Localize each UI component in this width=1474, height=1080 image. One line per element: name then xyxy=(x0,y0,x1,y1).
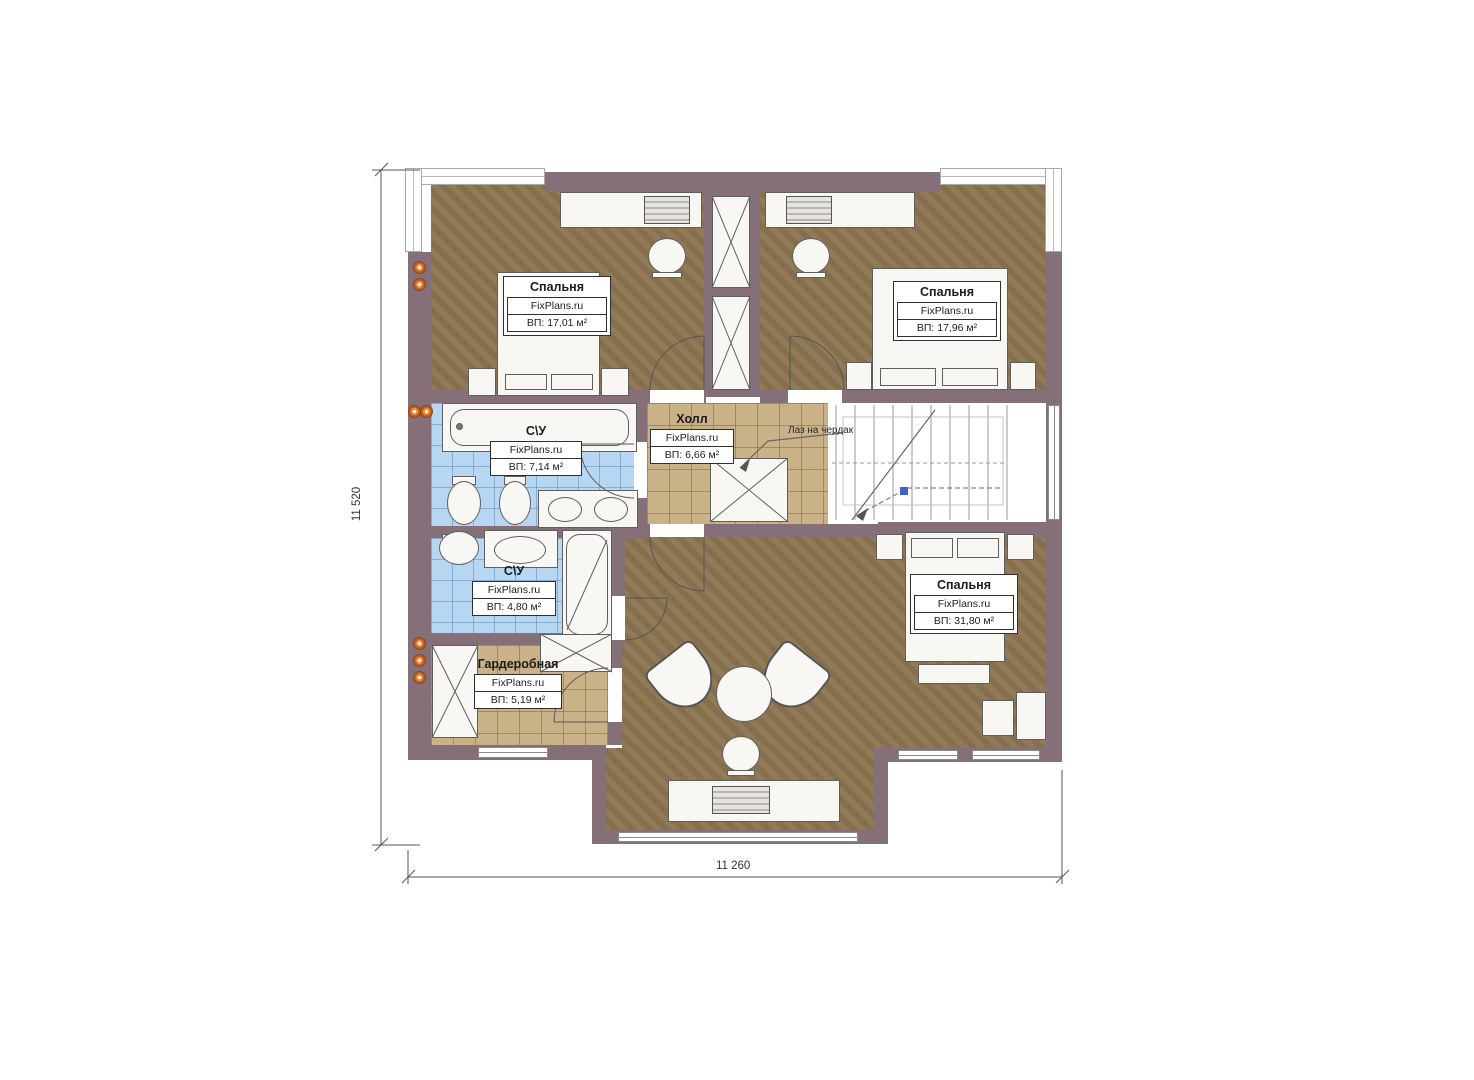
shower-tray xyxy=(566,534,608,635)
window xyxy=(1048,405,1060,520)
nightstand xyxy=(1010,362,1036,390)
door-opening xyxy=(788,390,842,403)
toilet xyxy=(447,481,481,525)
office-chair xyxy=(792,238,830,274)
nightstand xyxy=(468,368,496,396)
riser-marker-icon xyxy=(420,405,433,418)
room-label-bathroom-1: С\У FixPlans.ru ВП: 7,14 м² xyxy=(490,424,582,476)
window xyxy=(898,750,958,760)
chair-back xyxy=(796,272,826,278)
window xyxy=(972,750,1040,760)
room-area: ВП: 17,01 м² xyxy=(508,314,606,331)
riser-marker-icon xyxy=(413,261,426,274)
room-name: С\У xyxy=(472,564,556,578)
brand-label: FixPlans.ru xyxy=(915,596,1013,612)
window xyxy=(478,747,548,758)
office-chair xyxy=(648,238,686,274)
pillow xyxy=(957,538,999,558)
vent-shaft xyxy=(712,296,750,390)
pillow xyxy=(942,368,998,386)
room-area: ВП: 7,14 м² xyxy=(491,458,581,475)
dimension-vertical: 11 520 xyxy=(351,487,363,521)
wall xyxy=(545,172,940,192)
riser-marker-icon xyxy=(413,637,426,650)
room-area: ВП: 17,96 м² xyxy=(898,319,996,336)
room-label-bedroom-2: Спальня FixPlans.ru ВП: 17,96 м² xyxy=(893,281,1001,341)
room-name: С\У xyxy=(490,424,582,438)
riser-marker-icon xyxy=(413,654,426,667)
printer-icon xyxy=(786,196,832,224)
chair-back xyxy=(652,272,682,278)
room-label-wardrobe: Гардеробная FixPlans.ru ВП: 5,19 м² xyxy=(465,657,571,709)
riser-marker-icon xyxy=(413,278,426,291)
room-label-bedroom-1: Спальня FixPlans.ru ВП: 17,01 м² xyxy=(503,276,611,336)
attic-hatch-box xyxy=(710,458,788,522)
brand-label: FixPlans.ru xyxy=(491,442,581,458)
brand-label: FixPlans.ru xyxy=(475,675,561,691)
brand-label: FixPlans.ru xyxy=(473,582,555,598)
toilet xyxy=(439,531,479,565)
dimension-horizontal: 11 260 xyxy=(716,860,750,872)
door-opening xyxy=(612,596,625,640)
room-label-bathroom-2: С\У FixPlans.ru ВП: 4,80 м² xyxy=(472,564,556,616)
brand-label: FixPlans.ru xyxy=(898,303,996,319)
pillow xyxy=(505,374,547,390)
wall xyxy=(592,745,606,842)
sink xyxy=(548,497,582,522)
corner-window xyxy=(940,168,1062,185)
room-label-bedroom-3: Спальня FixPlans.ru ВП: 31,80 м² xyxy=(910,574,1018,634)
nightstand xyxy=(876,534,903,560)
pillow xyxy=(911,538,953,558)
corner-window xyxy=(405,168,545,185)
bidet xyxy=(499,481,531,525)
riser-marker-icon xyxy=(413,671,426,684)
room-area: ВП: 31,80 м² xyxy=(915,612,1013,629)
door-opening xyxy=(650,524,704,537)
faucet-icon xyxy=(456,423,463,430)
room-area: ВП: 5,19 м² xyxy=(475,691,561,708)
room-name: Спальня xyxy=(507,280,607,294)
floor-plan-canvas: Спальня FixPlans.ru ВП: 17,01 м² Спальня… xyxy=(0,0,1474,1080)
room-area: ВП: 4,80 м² xyxy=(473,598,555,615)
room-name: Холл xyxy=(650,412,734,426)
cabinet xyxy=(982,700,1014,736)
chair-back xyxy=(727,770,755,776)
pillow xyxy=(880,368,936,386)
cabinet xyxy=(1016,692,1046,740)
brand-label: FixPlans.ru xyxy=(651,430,733,446)
room-area: ВП: 6,66 м² xyxy=(651,446,733,463)
round-table xyxy=(716,666,772,722)
printer-icon xyxy=(644,196,690,224)
door-opening xyxy=(608,668,622,722)
nightstand xyxy=(601,368,629,396)
room-name: Гардеробная xyxy=(465,657,571,671)
sink xyxy=(594,497,628,522)
pillow xyxy=(551,374,593,390)
room-label-hall: Холл FixPlans.ru ВП: 6,66 м² xyxy=(650,412,734,464)
bed-bench xyxy=(918,664,990,684)
room-name: Спальня xyxy=(914,578,1014,592)
staircase-floor xyxy=(828,403,1046,522)
nightstand xyxy=(1007,534,1034,560)
nightstand xyxy=(846,362,872,390)
room-name: Спальня xyxy=(897,285,997,299)
office-chair xyxy=(722,736,760,772)
sink xyxy=(494,536,546,564)
vent-shaft xyxy=(712,196,750,288)
corner-window xyxy=(405,168,422,252)
corner-window xyxy=(1045,168,1062,252)
printer-icon xyxy=(712,786,770,814)
bay-window xyxy=(618,832,858,842)
attic-hatch-annotation: Лаз на чердак xyxy=(788,425,853,436)
brand-label: FixPlans.ru xyxy=(508,298,606,314)
door-opening xyxy=(650,390,704,403)
